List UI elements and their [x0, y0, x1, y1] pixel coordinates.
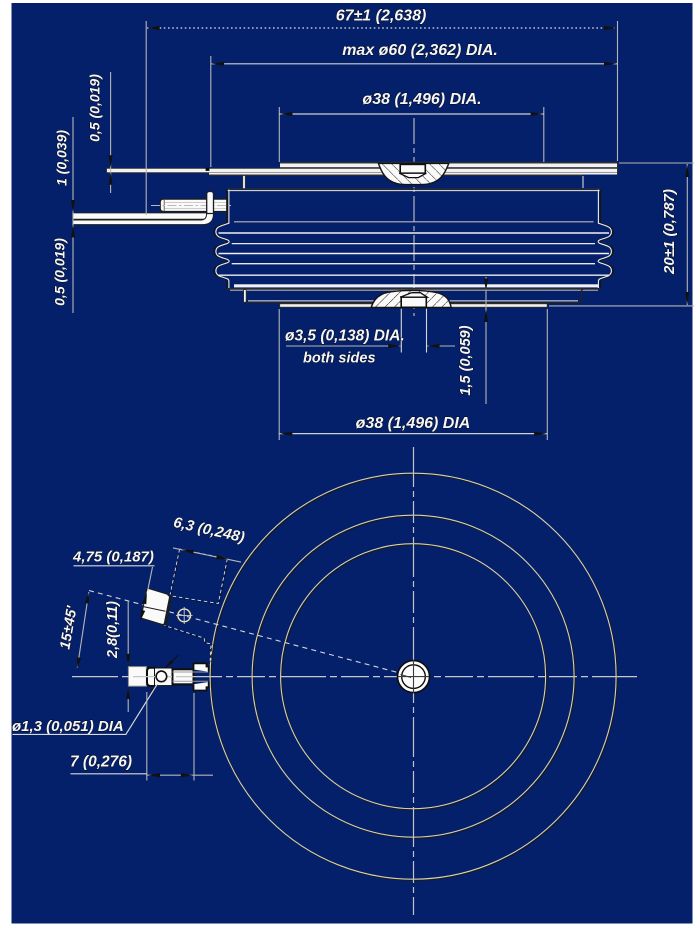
svg-text:20±1 (0,787): 20±1 (0,787) — [661, 189, 678, 275]
svg-text:7 (0,276): 7 (0,276) — [70, 754, 132, 771]
svg-text:ø1,3 (0,051) DIA: ø1,3 (0,051) DIA — [12, 718, 124, 735]
svg-text:0,5 (0,019): 0,5 (0,019) — [87, 74, 103, 142]
svg-text:ø38 (1,496) DIA: ø38 (1,496) DIA — [356, 415, 471, 432]
svg-text:0,5 (0,019): 0,5 (0,019) — [52, 238, 68, 306]
svg-text:max ø60 (2,362) DIA.: max ø60 (2,362) DIA. — [342, 42, 498, 59]
svg-text:2,8(0,11): 2,8(0,11) — [105, 601, 121, 659]
svg-text:1,5 (0,059): 1,5 (0,059) — [458, 325, 474, 395]
svg-text:both sides: both sides — [303, 351, 376, 367]
svg-text:4,75 (0,187): 4,75 (0,187) — [72, 549, 154, 566]
svg-text:ø3,5 (0,138) DIA.: ø3,5 (0,138) DIA. — [285, 328, 405, 345]
svg-text:ø38 (1,496) DIA.: ø38 (1,496) DIA. — [362, 91, 481, 108]
svg-text:1 (0,039): 1 (0,039) — [54, 130, 70, 186]
svg-text:67±1 (2,638): 67±1 (2,638) — [336, 8, 427, 25]
